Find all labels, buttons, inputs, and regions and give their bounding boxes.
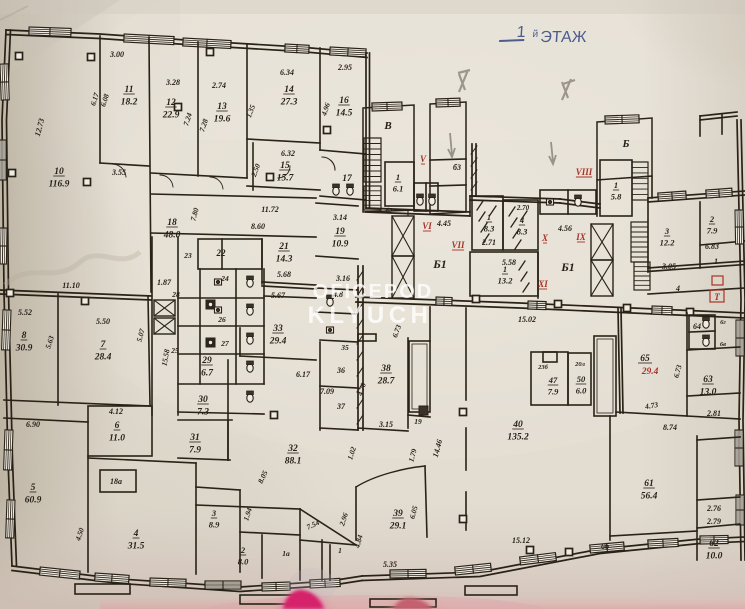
svg-text:6.17: 6.17 — [296, 370, 311, 379]
svg-text:3.55: 3.55 — [111, 168, 126, 177]
svg-text:2: 2 — [709, 214, 715, 224]
svg-text:5.50: 5.50 — [96, 317, 110, 326]
svg-text:13: 13 — [217, 102, 227, 112]
svg-text:3.05: 3.05 — [661, 262, 676, 271]
svg-text:1: 1 — [714, 257, 718, 266]
svg-text:5.35: 5.35 — [383, 560, 397, 569]
svg-text:3.00: 3.00 — [109, 50, 124, 59]
svg-text:1: 1 — [516, 24, 526, 41]
svg-text:19: 19 — [414, 417, 422, 426]
svg-text:47: 47 — [548, 375, 558, 385]
svg-text:29.1: 29.1 — [389, 522, 407, 532]
svg-text:8.3: 8.3 — [484, 224, 495, 234]
svg-text:5.67: 5.67 — [271, 291, 286, 300]
svg-text:48.0: 48.0 — [163, 231, 181, 241]
svg-text:21: 21 — [278, 242, 289, 252]
svg-text:1: 1 — [396, 172, 400, 182]
svg-text:22.9: 22.9 — [162, 111, 180, 121]
svg-text:6.90: 6.90 — [26, 420, 40, 429]
svg-text:23: 23 — [183, 251, 192, 260]
svg-text:В: В — [383, 120, 391, 132]
svg-text:12: 12 — [166, 98, 176, 108]
svg-text:Т: Т — [714, 292, 720, 302]
svg-text:2.71: 2.71 — [481, 238, 496, 247]
svg-text:13.0: 13.0 — [700, 388, 717, 398]
svg-text:18: 18 — [167, 218, 177, 228]
svg-text:28.7: 28.7 — [377, 377, 396, 387]
svg-text:Б1: Б1 — [432, 257, 447, 271]
svg-text:40: 40 — [512, 420, 523, 430]
svg-text:10: 10 — [54, 167, 64, 177]
svg-text:5.52: 5.52 — [18, 308, 32, 317]
svg-text:6в: 6в — [720, 341, 726, 348]
svg-text:KLYUCH: KLYUCH — [308, 302, 433, 329]
svg-text:4.56: 4.56 — [557, 224, 572, 233]
svg-text:2: 2 — [240, 545, 246, 555]
svg-text:11: 11 — [125, 85, 134, 95]
svg-text:31.5: 31.5 — [127, 542, 145, 552]
svg-text:3: 3 — [664, 226, 670, 236]
svg-text:OFICEPOD: OFICEPOD — [313, 281, 433, 303]
svg-text:18.2: 18.2 — [121, 98, 138, 108]
svg-text:15.12: 15.12 — [512, 536, 530, 545]
svg-text:17: 17 — [342, 174, 353, 184]
svg-text:14.3: 14.3 — [276, 255, 293, 265]
svg-text:37: 37 — [336, 402, 346, 411]
svg-text:33: 33 — [272, 324, 283, 334]
svg-text:3.15: 3.15 — [378, 420, 393, 429]
svg-text:10.9: 10.9 — [332, 240, 349, 250]
svg-text:30.9: 30.9 — [15, 344, 33, 354]
svg-text:8.0: 8.0 — [238, 557, 249, 567]
svg-text:6.34: 6.34 — [280, 68, 294, 77]
svg-text:8: 8 — [22, 331, 27, 341]
svg-text:11.72: 11.72 — [261, 205, 279, 214]
svg-text:6.1: 6.1 — [393, 184, 404, 194]
svg-text:11.0: 11.0 — [109, 434, 125, 444]
svg-text:88.1: 88.1 — [285, 457, 302, 467]
svg-text:ЭТАЖ: ЭТАЖ — [540, 29, 588, 46]
svg-text:32: 32 — [287, 444, 298, 454]
svg-text:7.3: 7.3 — [197, 408, 209, 418]
svg-text:7.9: 7.9 — [548, 387, 559, 397]
svg-text:14: 14 — [284, 85, 294, 95]
svg-text:Б1: Б1 — [560, 260, 575, 274]
svg-text:35: 35 — [340, 343, 349, 352]
svg-text:25: 25 — [170, 346, 179, 355]
svg-text:2.81: 2.81 — [706, 409, 721, 418]
svg-text:2.79: 2.79 — [706, 517, 721, 526]
svg-text:4: 4 — [133, 529, 139, 539]
svg-text:6б: 6б — [601, 542, 610, 551]
svg-text:62: 62 — [709, 539, 719, 549]
svg-text:19.6: 19.6 — [214, 115, 231, 125]
svg-text:IX: IX — [575, 232, 587, 242]
svg-text:116.9: 116.9 — [49, 180, 70, 190]
svg-text:6.7: 6.7 — [201, 369, 214, 379]
svg-text:2.70: 2.70 — [516, 204, 530, 212]
svg-text:VII: VII — [451, 240, 465, 250]
svg-text:23б: 23б — [537, 364, 549, 371]
svg-text:7.9: 7.9 — [707, 226, 718, 236]
svg-text:31: 31 — [189, 433, 200, 443]
svg-text:135.2: 135.2 — [507, 433, 529, 443]
svg-text:б3: б3 — [453, 163, 461, 172]
svg-text:38: 38 — [380, 364, 391, 374]
svg-text:36: 36 — [336, 366, 345, 375]
svg-text:26: 26 — [217, 315, 226, 324]
svg-text:3.14: 3.14 — [332, 213, 347, 222]
svg-text:8.74: 8.74 — [663, 423, 677, 432]
svg-text:30: 30 — [197, 395, 208, 405]
svg-text:6.32: 6.32 — [281, 149, 295, 158]
svg-text:27: 27 — [220, 339, 229, 348]
svg-text:VIII: VIII — [576, 167, 593, 177]
svg-text:11.10: 11.10 — [62, 281, 80, 290]
svg-text:64: 64 — [693, 322, 701, 331]
svg-text:1.87: 1.87 — [157, 278, 172, 287]
svg-text:24: 24 — [220, 274, 229, 283]
svg-text:4.45: 4.45 — [436, 219, 451, 228]
svg-text:65: 65 — [640, 354, 650, 364]
svg-text:2.74: 2.74 — [211, 81, 226, 90]
svg-text:4: 4 — [519, 215, 524, 225]
svg-text:28: 28 — [171, 290, 180, 299]
svg-text:61: 61 — [644, 479, 654, 489]
svg-text:10.0: 10.0 — [706, 552, 723, 562]
svg-text:29.4: 29.4 — [641, 367, 659, 377]
svg-text:7.09: 7.09 — [320, 387, 334, 396]
svg-text:1а: 1а — [282, 549, 290, 558]
svg-text:5: 5 — [31, 483, 36, 493]
svg-text:4.12: 4.12 — [108, 407, 123, 416]
svg-text:XI: XI — [537, 279, 548, 289]
svg-text:6г: 6г — [720, 319, 726, 326]
svg-text:7.9: 7.9 — [189, 446, 201, 456]
svg-text:28.4: 28.4 — [94, 353, 112, 363]
svg-text:8.9: 8.9 — [209, 520, 220, 530]
svg-text:14.5: 14.5 — [336, 109, 353, 119]
svg-text:V: V — [420, 154, 427, 164]
svg-text:22: 22 — [216, 248, 227, 258]
svg-text:27.3: 27.3 — [280, 98, 298, 108]
svg-text:13.2: 13.2 — [498, 276, 514, 286]
svg-text:6.0: 6.0 — [576, 386, 587, 396]
svg-text:12.2: 12.2 — [660, 238, 676, 248]
svg-text:X: X — [541, 233, 549, 243]
svg-text:б2: б2 — [386, 207, 393, 215]
svg-text:4: 4 — [675, 284, 680, 293]
svg-text:3: 3 — [211, 508, 217, 518]
svg-text:1: 1 — [487, 212, 491, 222]
svg-text:Б: Б — [622, 138, 630, 150]
svg-text:15.02: 15.02 — [518, 315, 536, 324]
svg-text:29.4: 29.4 — [269, 337, 287, 347]
svg-text:16: 16 — [339, 96, 349, 106]
svg-text:39: 39 — [392, 509, 403, 519]
svg-text:3.28: 3.28 — [165, 78, 180, 87]
svg-text:5.58: 5.58 — [502, 258, 516, 267]
svg-text:60.9: 60.9 — [25, 496, 42, 506]
svg-text:5.8: 5.8 — [611, 192, 622, 202]
svg-text:56.4: 56.4 — [641, 492, 658, 502]
svg-text:5.68: 5.68 — [277, 270, 291, 279]
svg-text:19: 19 — [335, 227, 345, 237]
svg-text:18а: 18а — [110, 477, 122, 486]
svg-text:8.60: 8.60 — [251, 222, 265, 231]
svg-text:6.83: 6.83 — [705, 242, 719, 251]
svg-text:6: 6 — [115, 421, 120, 431]
svg-text:VI: VI — [422, 221, 432, 231]
svg-text:1: 1 — [614, 180, 618, 190]
svg-text:29: 29 — [201, 356, 212, 366]
svg-text:15.7: 15.7 — [277, 174, 295, 184]
svg-text:50: 50 — [577, 374, 586, 384]
svg-text:8.3: 8.3 — [517, 227, 528, 237]
svg-text:2.76: 2.76 — [706, 504, 721, 513]
svg-text:15: 15 — [280, 161, 290, 171]
svg-text:й: й — [532, 29, 538, 40]
svg-text:63: 63 — [703, 375, 713, 385]
svg-text:20л: 20л — [574, 361, 586, 368]
svg-text:2.95: 2.95 — [337, 63, 352, 72]
svg-text:1: 1 — [338, 546, 342, 555]
